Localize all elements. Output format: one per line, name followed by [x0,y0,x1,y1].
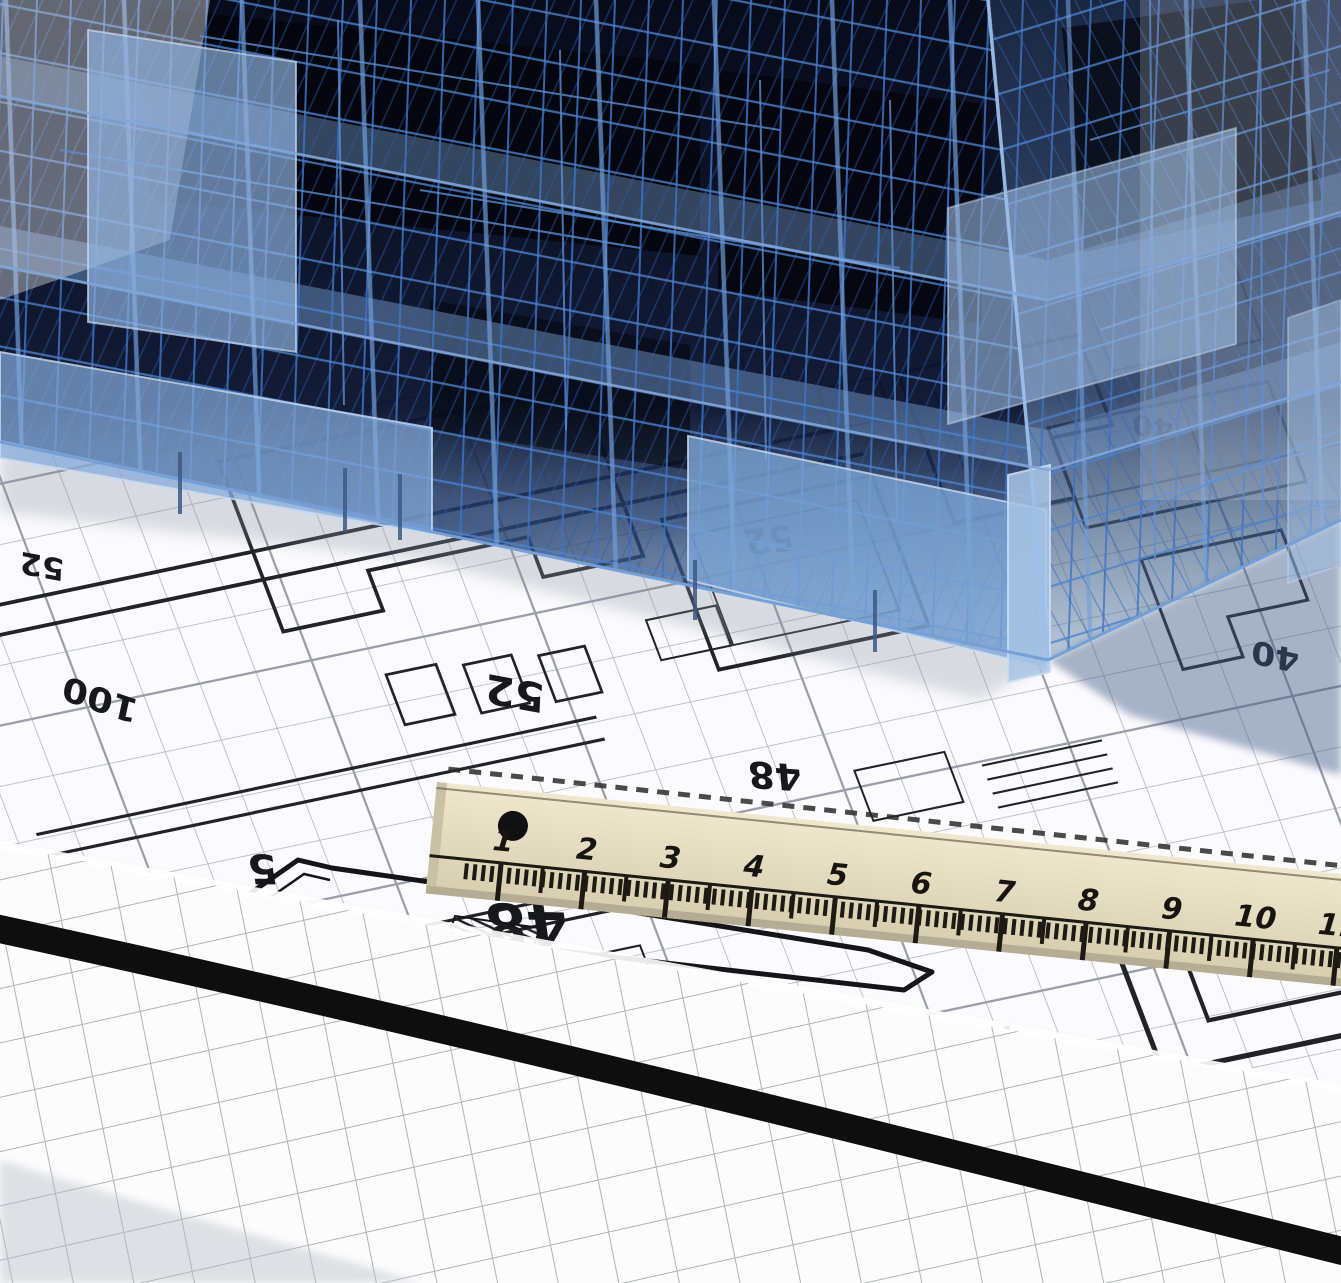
scene-canvas: Translucent blue wireframe building mode… [0,0,1341,1283]
ruler-number-4: 4 [741,848,766,885]
glass-corner-pillar [1008,465,1050,682]
ruler-number-10: 10 [1233,898,1278,937]
ruler-number-2: 2 [575,832,599,869]
annotation-48-a: 48 [746,752,803,799]
blueprint-render-scene: Translucent blue wireframe building mode… [0,0,1341,1283]
ruler-number-11: 11 [1316,907,1341,946]
ruler-number-6: 6 [909,865,933,902]
ruler-number-7: 7 [993,874,1017,911]
ruler-number-5: 5 [825,857,849,894]
ruler-number-9: 9 [1160,891,1184,928]
ruler-number-3: 3 [658,840,682,877]
ruler-number-1: 1 [491,823,515,860]
ruler-number-8: 8 [1076,882,1100,919]
